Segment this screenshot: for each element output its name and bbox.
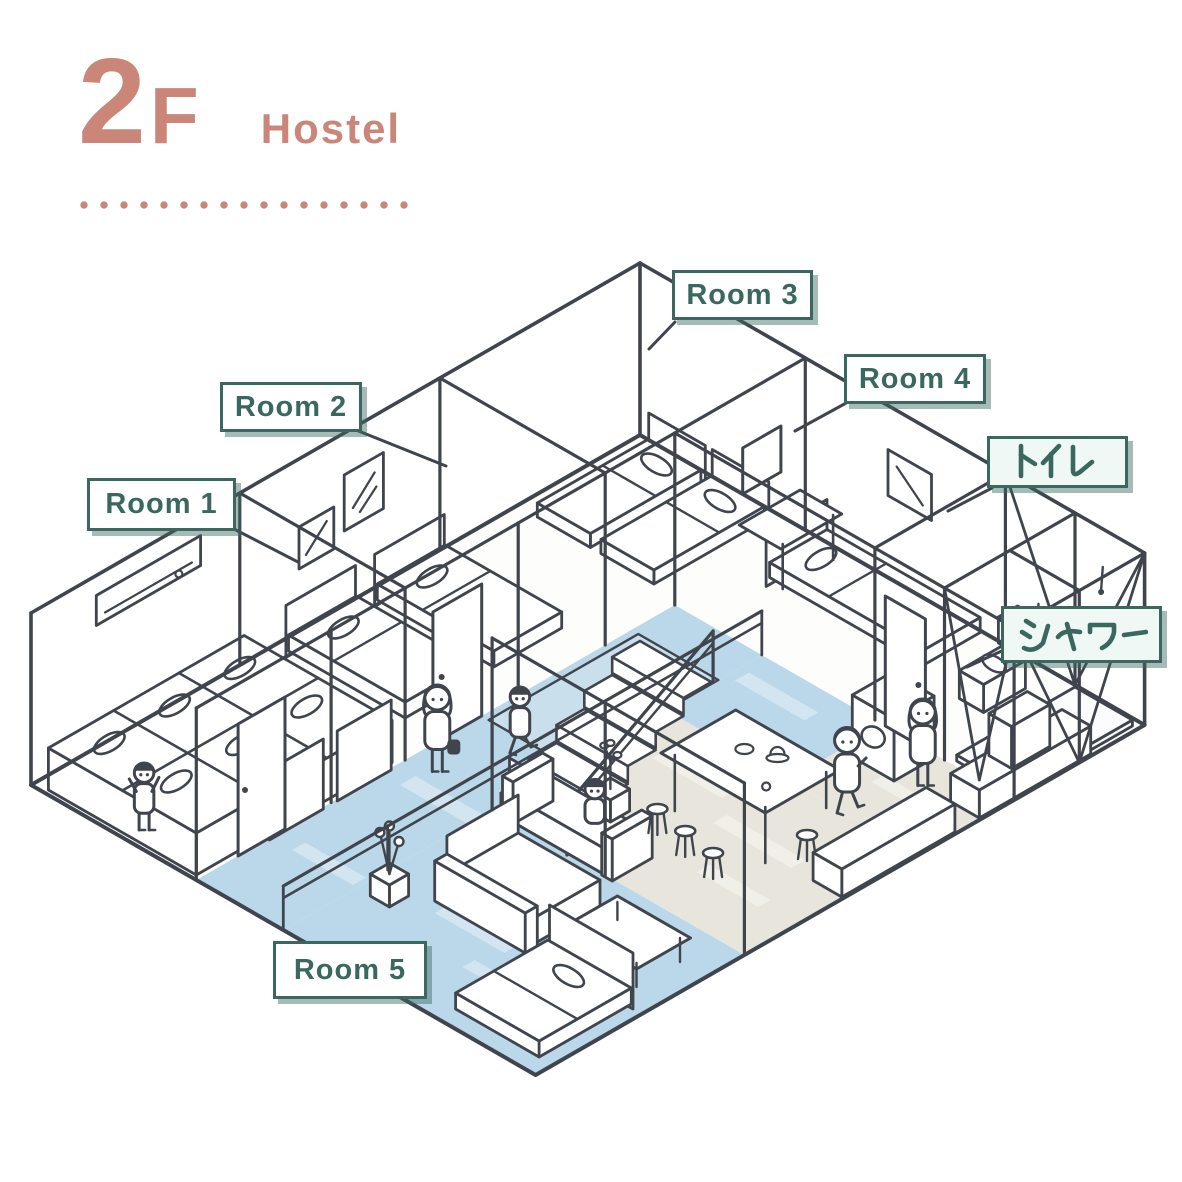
label-room-5: Room 5 [273,941,427,999]
label-room-4: Room 4 [844,354,986,404]
label-room-1-text: Room 1 [105,488,217,521]
label-room-2: Room 2 [220,382,362,432]
label-room-1: Room 1 [87,478,236,531]
label-room-2-text: Room 2 [235,391,347,424]
shower-label-glyphs [1016,615,1148,655]
label-shower: シャワー [1001,606,1162,663]
label-room-3-text: Room 3 [686,279,798,312]
label-toilet: トイレ [987,436,1128,488]
toilet-label-glyphs [1013,443,1103,481]
label-room-4-text: Room 4 [859,363,971,396]
floorplan-illustration [0,0,1182,1182]
hostel-floorplan-page: 2 F Hostel Room 3 Room 4 Room 2 Room 1 R… [0,0,1182,1182]
label-room-3: Room 3 [672,270,813,320]
label-room-5-text: Room 5 [294,954,406,987]
